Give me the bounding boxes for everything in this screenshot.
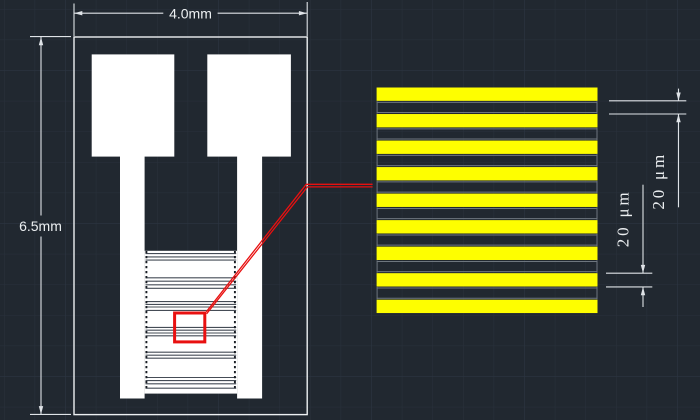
svg-text:6.5mm: 6.5mm bbox=[19, 218, 62, 234]
svg-text:20 μm: 20 μm bbox=[614, 190, 633, 248]
svg-text:4.0mm: 4.0mm bbox=[169, 6, 212, 22]
svg-text:20 μm: 20 μm bbox=[649, 152, 668, 210]
